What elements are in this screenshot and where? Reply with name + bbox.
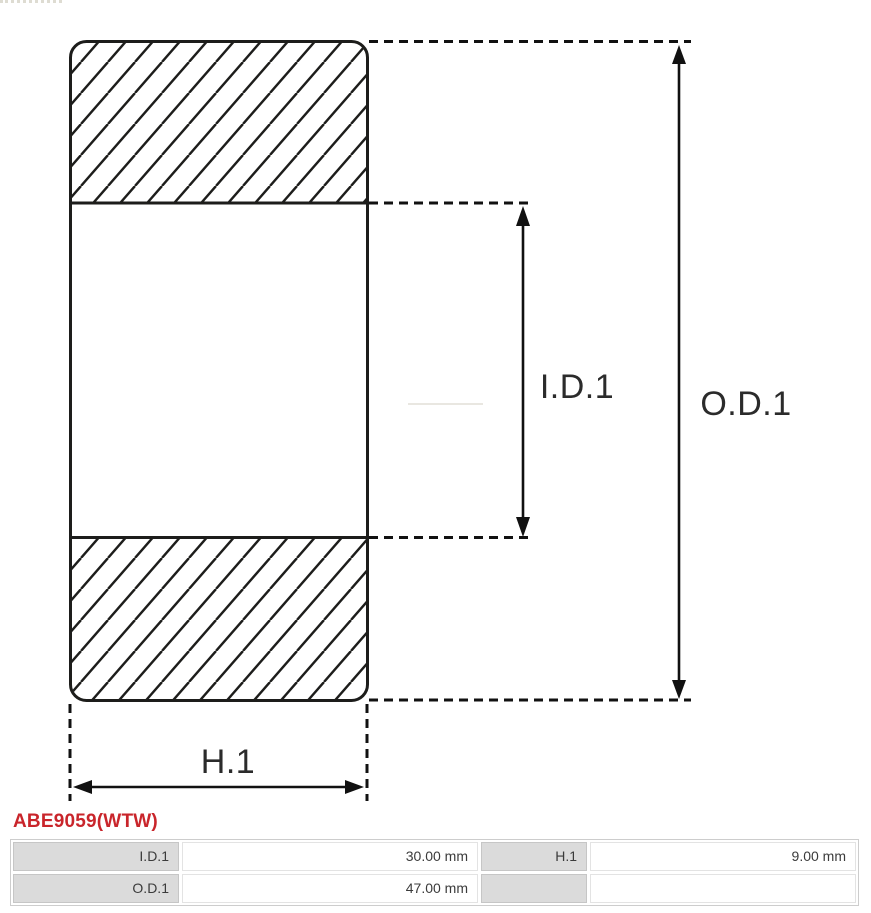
- spec-value-od1: 47.00 mm: [182, 874, 478, 903]
- od1-dimension-arrow: [672, 45, 686, 699]
- bearing-outline: [71, 42, 368, 701]
- id1-dimension-arrow: [516, 206, 530, 537]
- h1-label: H.1: [201, 743, 255, 781]
- spec-value-h1: 9.00 mm: [590, 842, 856, 871]
- h1-dimension-arrow: [73, 780, 364, 794]
- bearing-hatch-top: [72, 43, 366, 202]
- spec-label-id1: I.D.1: [13, 842, 179, 871]
- bearing-cross-section-diagram: I.D.1 O.D.1 H.1: [0, 0, 871, 810]
- id1-label: I.D.1: [540, 368, 614, 406]
- product-dimensions-page: I.D.1 O.D.1 H.1 ABE9059(WTW) I.D.1 30.00…: [0, 0, 871, 913]
- spec-label-h1: H.1: [481, 842, 587, 871]
- part-number-link[interactable]: ABE9059(WTW): [13, 811, 158, 833]
- od1-label: O.D.1: [700, 385, 791, 423]
- spec-value-id1: 30.00 mm: [182, 842, 478, 871]
- bearing-hatch-bottom: [72, 539, 366, 699]
- spec-value-empty: [590, 874, 856, 903]
- spec-label-empty: [481, 874, 587, 903]
- spec-label-od1: O.D.1: [13, 874, 179, 903]
- dimensions-table: I.D.1 30.00 mm H.1 9.00 mm O.D.1 47.00 m…: [10, 839, 859, 906]
